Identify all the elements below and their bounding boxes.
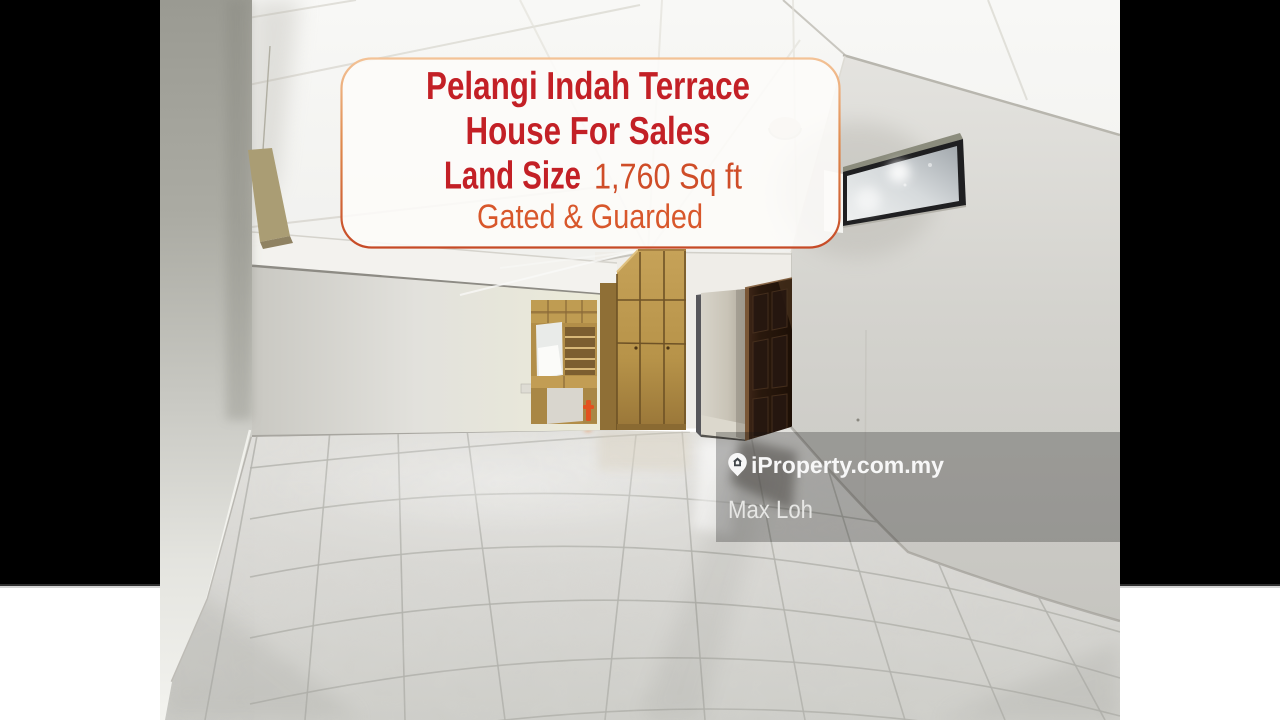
svg-text:Pelangi Indah Terrace: Pelangi Indah Terrace [426,65,750,108]
svg-text:House For Sales: House For Sales [466,110,711,153]
svg-text:Max Loh: Max Loh [728,496,813,524]
svg-text:1,760 Sq ft: 1,760 Sq ft [594,156,742,197]
svg-text:Land Size: Land Size [444,155,581,198]
svg-text:iProperty.com.my: iProperty.com.my [751,452,944,478]
svg-text:Gated & Guarded: Gated & Guarded [477,198,703,236]
